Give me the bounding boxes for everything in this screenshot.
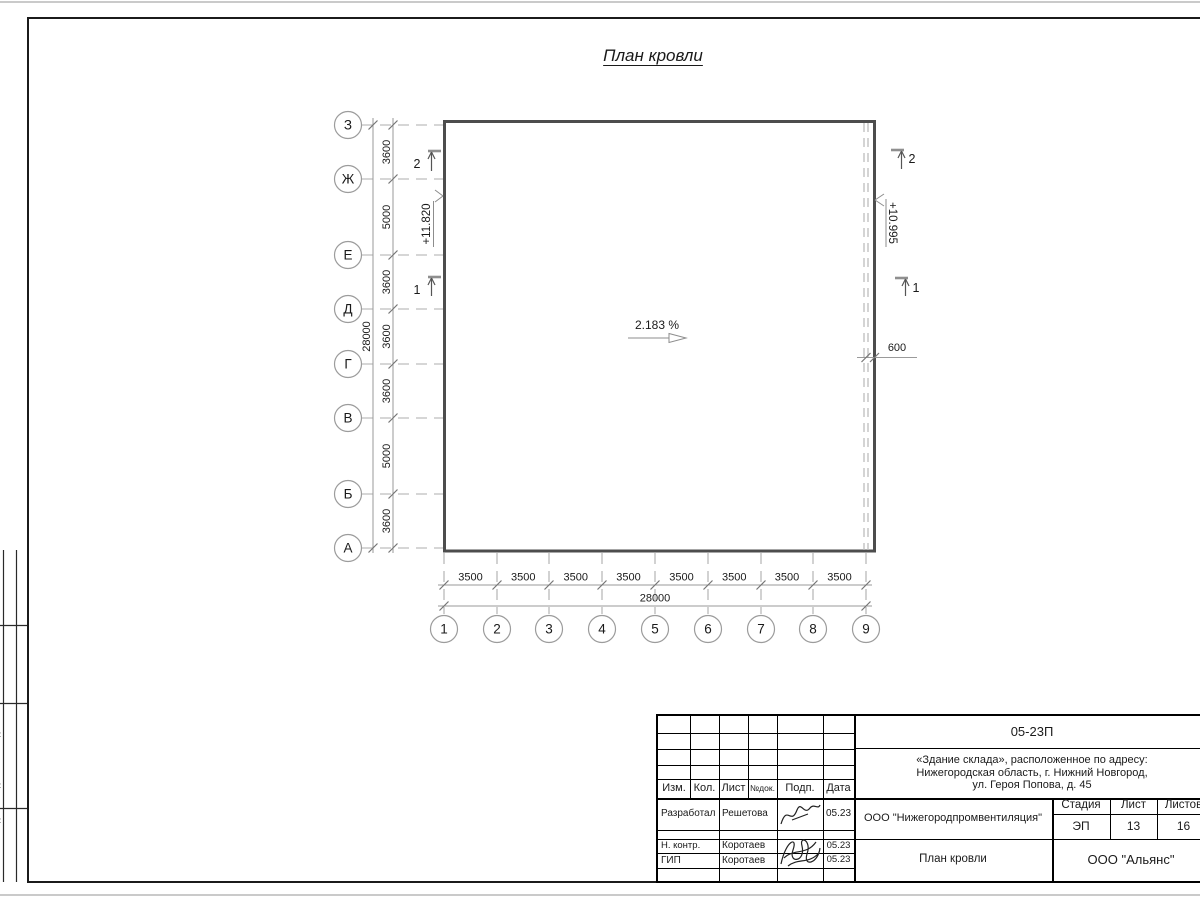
tb-role-ncontr: Н. контр. — [658, 839, 722, 853]
tb-name-gip-label: Коротаев — [722, 855, 765, 867]
side-stamp-fragment-0: : — [0, 730, 1, 739]
section-mark-left-top: 2 — [414, 151, 441, 171]
elevation-mark-left: +11.820 — [421, 190, 443, 247]
tb-role-gip: ГИП — [658, 853, 722, 868]
dim-col-5: 3500 — [722, 572, 746, 584]
roof-outline — [445, 122, 875, 552]
axis-col-8: 9 — [862, 622, 870, 637]
section-right-bottom-label: 1 — [913, 281, 920, 295]
axis-col-1: 2 — [493, 622, 501, 637]
axis-row-5: В — [343, 411, 352, 426]
row-axis-lines — [362, 125, 444, 548]
dim-col-4: 3500 — [669, 572, 693, 584]
tb-org: ООО "Нижегородпромвентиляция" — [854, 798, 1052, 839]
tb-stage-value-label: ЭП — [1072, 820, 1089, 834]
tb-sheet-value-label: 13 — [1127, 820, 1140, 834]
side-stamp-fragment-1: : — [0, 781, 1, 790]
tb-project-line-2: ул. Героя Попова, д. 45 — [972, 779, 1091, 792]
axis-row-6: Б — [344, 487, 353, 502]
tb-sheets-header: Листов — [1157, 798, 1200, 814]
elevation-right-label: +10.995 — [886, 202, 898, 244]
slope-label: 2.183 % — [635, 318, 679, 332]
tb-date-gip-label: 05.23 — [827, 855, 851, 866]
tb-col-ndok-label: №док. — [750, 784, 775, 794]
tb-name-ncontr-label: Коротаев — [722, 840, 765, 852]
axis-row-0: З — [344, 118, 352, 133]
elevation-mark-right: +10.995 — [875, 194, 898, 247]
axis-col-3: 4 — [598, 622, 606, 637]
axis-row-7: А — [343, 541, 352, 556]
tb-col-izm-label: Изм. — [662, 782, 686, 795]
axis-row-4: Г — [344, 357, 352, 372]
tb-col-podp: Подп. — [777, 779, 823, 798]
dim-col-1: 3500 — [511, 572, 535, 584]
tb-stage-header-label: Стадия — [1061, 799, 1100, 812]
elevation-left-label: +11.820 — [421, 203, 433, 244]
row-axis-markers: З Ж Е Д Г В Б А — [335, 112, 362, 562]
tb-col-data-label: Дата — [826, 782, 850, 795]
tb-sheets-value: 16 — [1157, 814, 1200, 839]
axis-col-4: 5 — [651, 622, 659, 637]
overhang-dim-label: 600 — [888, 342, 906, 354]
dim-row-1: 5000 — [381, 205, 393, 229]
tb-date-ncontr: 05.23 — [823, 839, 854, 853]
tb-sheet-header: Лист — [1110, 798, 1157, 814]
tb-col-list: Лист — [719, 779, 748, 798]
tb-sheets-header-label: Листов — [1165, 799, 1200, 812]
tb-project-line-1: Нижегородская область, г. Нижний Новгоро… — [916, 767, 1147, 780]
signature-korotaev — [776, 834, 824, 870]
dim-row-total: 28000 — [361, 321, 373, 352]
tb-doc-number-label: 05-23П — [1011, 725, 1054, 740]
signature-developer — [778, 800, 822, 828]
tb-date-gip: 05.23 — [823, 853, 854, 868]
side-stamp: : : : — [0, 550, 27, 882]
tb-company: ООО "Альянс" — [1052, 839, 1200, 881]
tb-stage-value: ЭП — [1052, 814, 1110, 839]
section-left-bottom-label: 1 — [414, 283, 421, 297]
dim-col-7: 3500 — [827, 572, 851, 584]
tb-date-ncontr-label: 05.23 — [827, 841, 851, 852]
tb-project-line-0: «Здание склада», расположенное по адресу… — [916, 754, 1147, 767]
tb-col-podp-label: Подп. — [785, 782, 814, 795]
dim-row-5: 5000 — [381, 444, 393, 468]
section-mark-left-bottom: 1 — [414, 277, 441, 297]
tb-role-gip-label: ГИП — [661, 855, 681, 867]
dim-col-6: 3500 — [775, 572, 799, 584]
title-block: Изм. Кол. Лист №док. Подп. Дата Разработ… — [656, 714, 1200, 883]
tb-doc-number: 05-23П — [854, 716, 1200, 748]
tb-role-developer: Разработал — [658, 798, 722, 830]
tb-col-ndok: №док. — [748, 779, 777, 798]
tb-date-developer-label: 05.23 — [826, 808, 851, 820]
tb-date-developer: 05.23 — [823, 798, 854, 830]
tb-name-ncontr: Коротаев — [719, 839, 780, 853]
tb-name-developer: Решетова — [719, 798, 780, 830]
dim-col-total: 28000 — [640, 593, 671, 605]
tb-project: «Здание склада», расположенное по адресу… — [854, 748, 1200, 798]
tb-sheet-value: 13 — [1110, 814, 1157, 839]
section-left-top-label: 2 — [414, 157, 421, 171]
tb-col-kol-label: Кол. — [694, 782, 716, 795]
tb-sheet-header-label: Лист — [1121, 799, 1146, 812]
axis-col-2: 3 — [545, 622, 553, 637]
axis-row-1: Ж — [342, 172, 355, 187]
dim-col-3: 3500 — [616, 572, 640, 584]
tb-col-list-label: Лист — [722, 782, 746, 795]
axis-col-6: 7 — [757, 622, 765, 637]
dim-col-2: 3500 — [564, 572, 588, 584]
tb-name-gip: Коротаев — [719, 853, 780, 868]
drawing-sheet: { "page": { "title": "План кровли" }, "p… — [0, 0, 1200, 900]
side-stamp-fragment-2: : — [0, 816, 1, 825]
tb-col-data: Дата — [823, 779, 854, 798]
dim-row-2: 3600 — [381, 270, 393, 294]
tb-name-developer-label: Решетова — [722, 808, 768, 820]
tb-company-label: ООО "Альянс" — [1088, 853, 1175, 868]
tb-sheets-value-label: 16 — [1177, 820, 1190, 834]
axis-row-2: Е — [343, 248, 352, 263]
col-axis-markers: 1 2 3 4 5 6 7 8 9 — [431, 616, 880, 643]
tb-stage-header: Стадия — [1052, 798, 1110, 814]
dim-row-6: 3600 — [381, 509, 393, 533]
tb-col-izm: Изм. — [658, 779, 690, 798]
section-mark-right-bottom: 1 — [895, 278, 920, 296]
dim-row-0: 3600 — [381, 140, 393, 164]
tb-drawing-title: План кровли — [854, 839, 1052, 881]
col-axis-lines — [444, 553, 866, 614]
dim-row-4: 3600 — [381, 379, 393, 403]
section-mark-right-top: 2 — [891, 150, 916, 169]
tb-org-label: ООО "Нижегородпромвентиляция" — [864, 812, 1042, 825]
tb-drawing-title-label: План кровли — [919, 853, 987, 866]
section-right-top-label: 2 — [909, 152, 916, 166]
axis-col-0: 1 — [440, 622, 448, 637]
tb-col-kol: Кол. — [690, 779, 719, 798]
dim-row-3: 3600 — [381, 324, 393, 348]
tb-role-ncontr-label: Н. контр. — [661, 841, 700, 852]
tb-role-developer-label: Разработал — [661, 808, 715, 820]
axis-col-5: 6 — [704, 622, 712, 637]
dim-col-0: 3500 — [458, 572, 482, 584]
axis-row-3: Д — [343, 302, 352, 317]
left-dimension-labels: 3600 5000 3600 3600 3600 5000 3600 28000 — [361, 140, 393, 533]
axis-col-7: 8 — [809, 622, 817, 637]
